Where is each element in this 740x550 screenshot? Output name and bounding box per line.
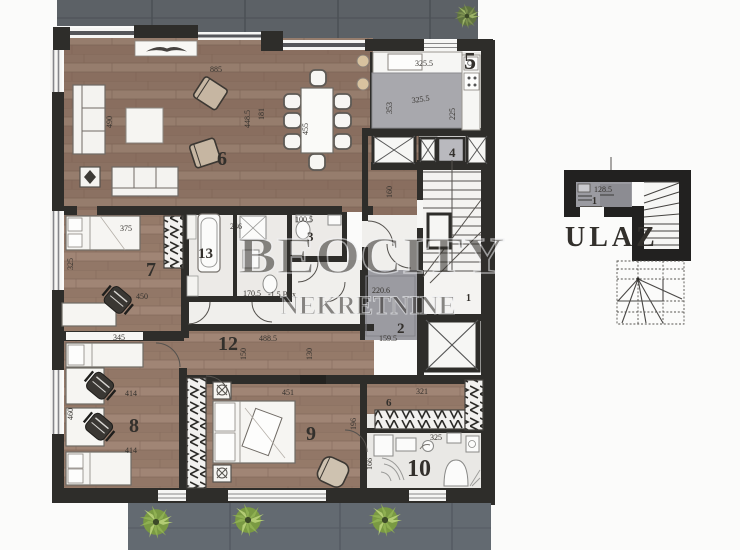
svg-text:451: 451 — [282, 388, 294, 397]
svg-text:325: 325 — [430, 433, 442, 442]
svg-text:321: 321 — [416, 387, 428, 396]
svg-text:100.5: 100.5 — [295, 215, 313, 224]
svg-text:181: 181 — [257, 108, 266, 120]
svg-text:325.5: 325.5 — [415, 59, 433, 68]
svg-text:490: 490 — [105, 116, 114, 128]
svg-text:345: 345 — [113, 333, 125, 342]
svg-text:5: 5 — [464, 49, 476, 75]
svg-text:12: 12 — [218, 333, 238, 355]
svg-text:450: 450 — [136, 292, 148, 301]
svg-text:448.5: 448.5 — [243, 110, 252, 128]
svg-text:130: 130 — [305, 348, 314, 360]
svg-text:1: 1 — [592, 196, 597, 207]
svg-text:414: 414 — [125, 446, 137, 455]
svg-text:325: 325 — [66, 258, 75, 270]
svg-text:160: 160 — [385, 186, 394, 198]
svg-text:7: 7 — [146, 259, 156, 281]
svg-text:225: 225 — [448, 108, 457, 120]
svg-text:NEKRETNINE: NEKRETNINE — [280, 291, 456, 320]
svg-text:885: 885 — [210, 65, 222, 74]
svg-text:10: 10 — [407, 456, 431, 482]
svg-text:166: 166 — [365, 458, 374, 470]
svg-text:2: 2 — [397, 321, 405, 337]
svg-text:353: 353 — [385, 102, 394, 114]
svg-text:1: 1 — [466, 293, 471, 304]
svg-text:159.5: 159.5 — [379, 334, 397, 343]
svg-text:BEOCITY: BEOCITY — [238, 228, 505, 285]
svg-text:128.5: 128.5 — [594, 185, 612, 194]
svg-text:6: 6 — [217, 148, 227, 170]
svg-text:375: 375 — [120, 224, 132, 233]
svg-text:488.5: 488.5 — [259, 334, 277, 343]
svg-text:ULAZ: ULAZ — [565, 222, 659, 253]
svg-text:414: 414 — [125, 389, 137, 398]
svg-text:150: 150 — [239, 348, 248, 360]
svg-text:460: 460 — [66, 408, 75, 420]
svg-text:4: 4 — [449, 145, 456, 160]
svg-text:196: 196 — [349, 418, 358, 430]
svg-text:13: 13 — [198, 246, 213, 262]
svg-text:6: 6 — [386, 397, 392, 409]
svg-text:8: 8 — [129, 415, 139, 437]
svg-text:170.5: 170.5 — [243, 289, 261, 298]
svg-text:455: 455 — [301, 123, 310, 135]
svg-text:9: 9 — [306, 423, 316, 445]
